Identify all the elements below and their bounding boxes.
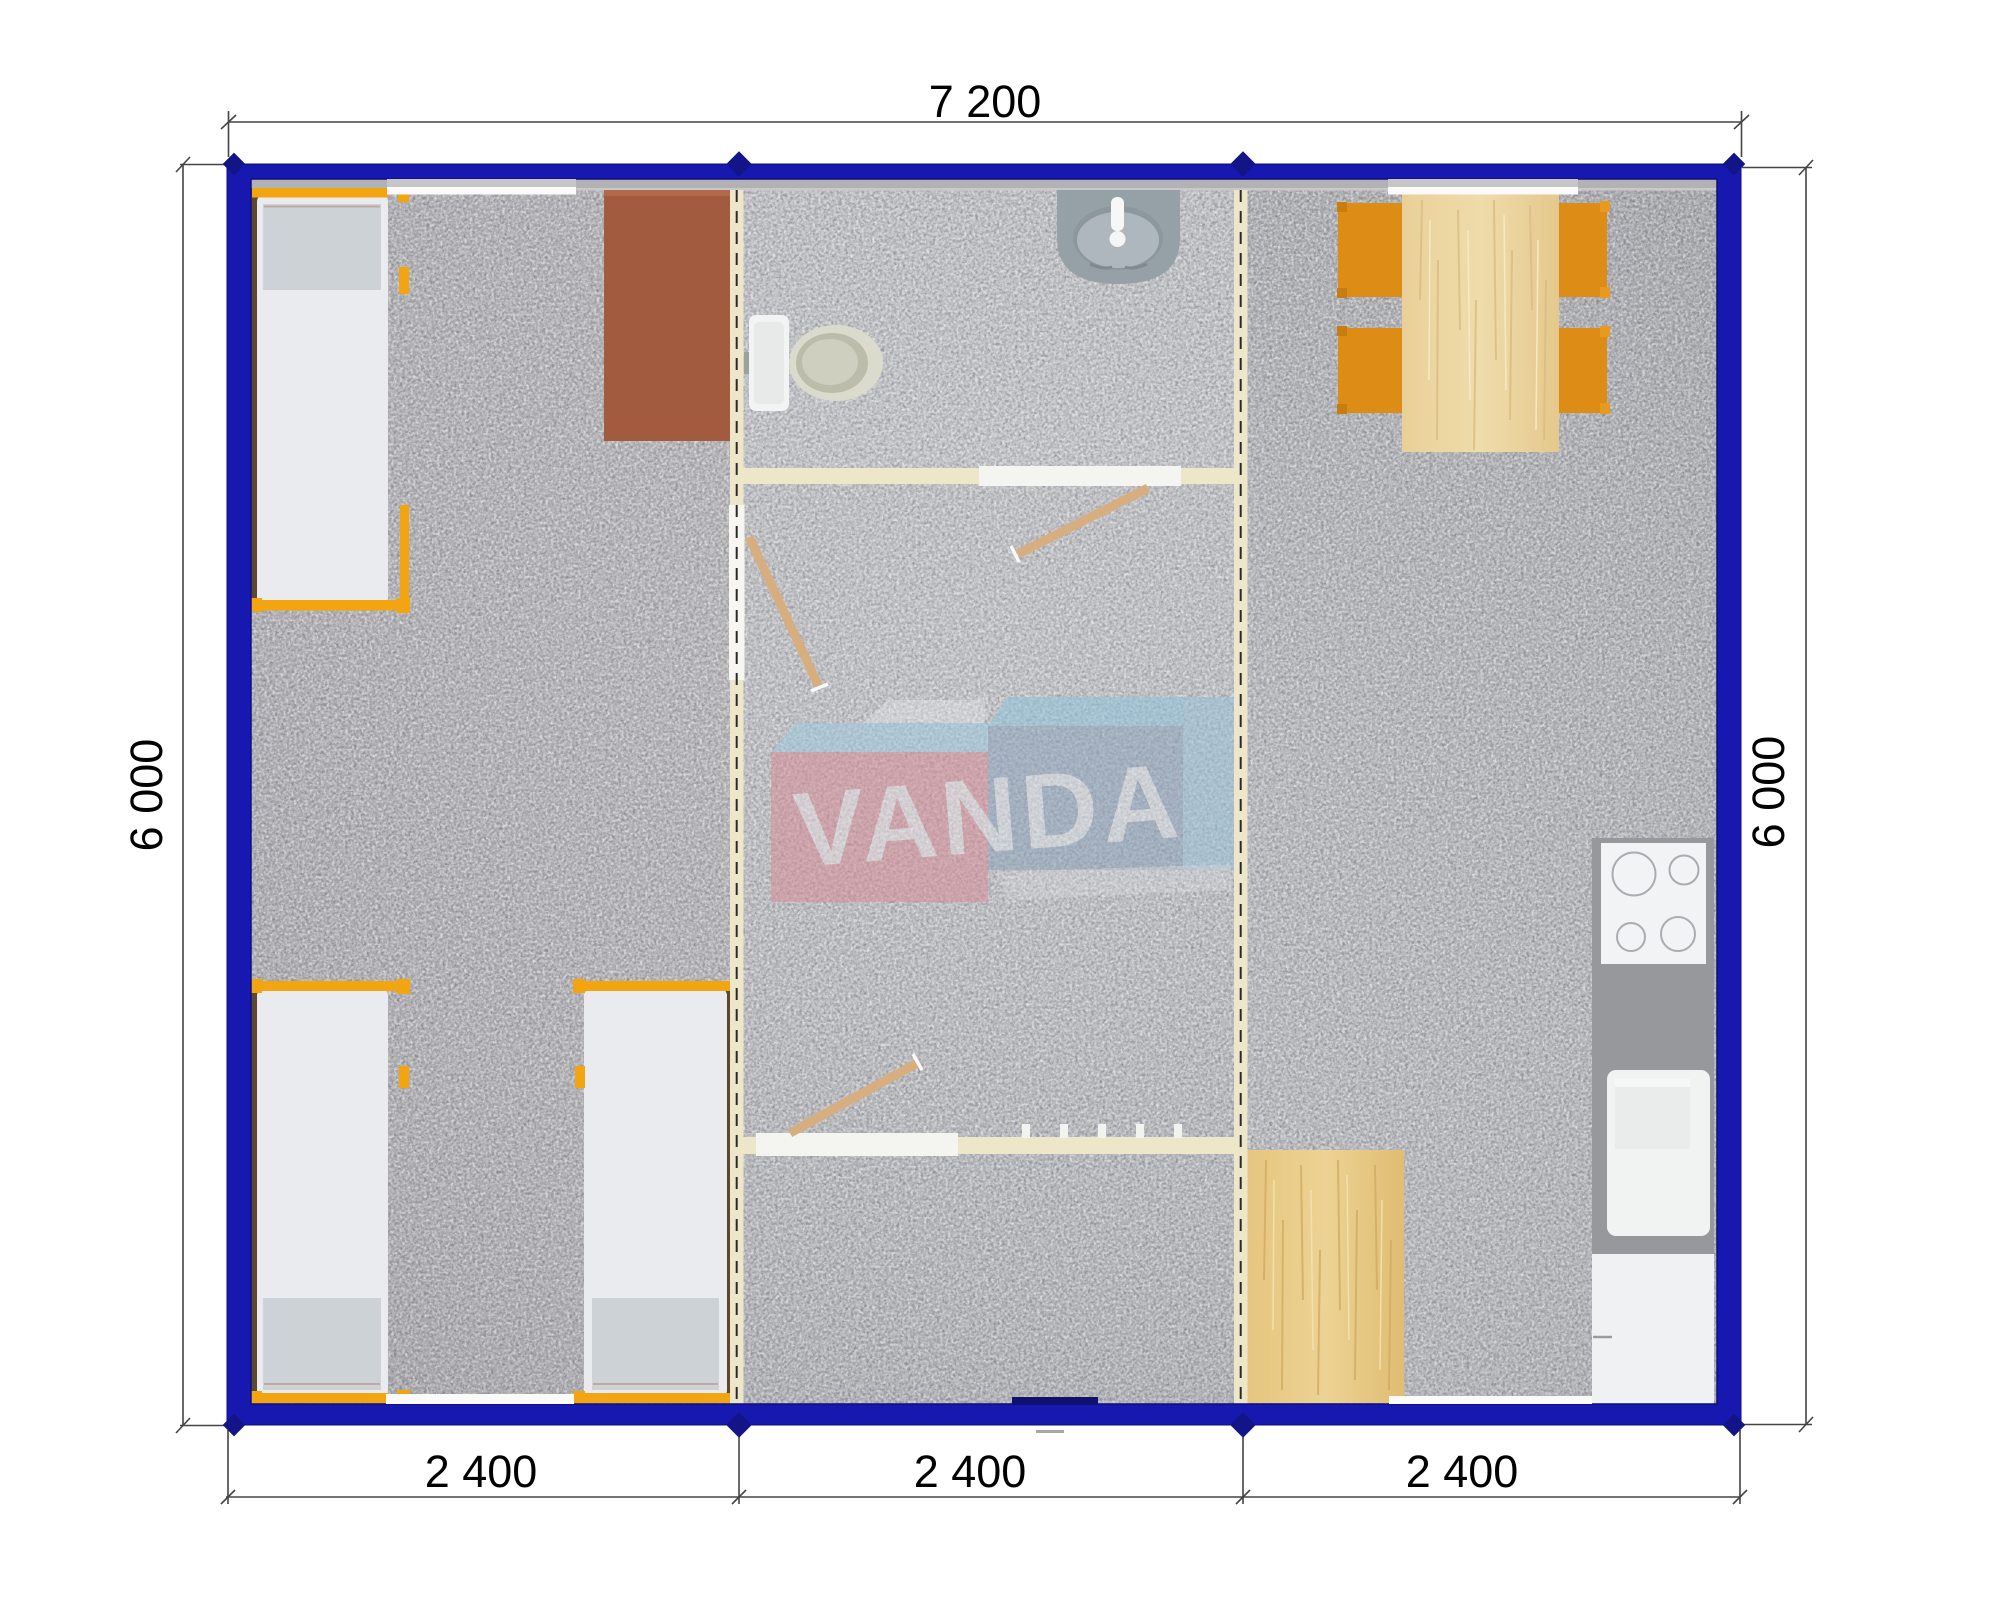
svg-text:6 000: 6 000 (121, 739, 172, 852)
svg-text:2 400: 2 400 (425, 1446, 538, 1497)
svg-text:7 200: 7 200 (929, 76, 1042, 127)
svg-text:6 000: 6 000 (1743, 736, 1794, 849)
svg-text:2 400: 2 400 (914, 1446, 1027, 1497)
svg-text:2 400: 2 400 (1406, 1446, 1519, 1497)
